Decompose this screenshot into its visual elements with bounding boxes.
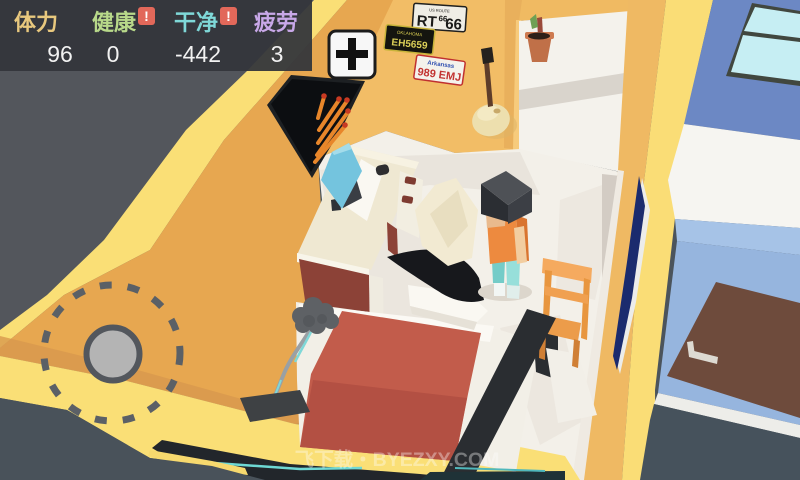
svg-text:96: 96 bbox=[47, 41, 73, 67]
svg-text:体力: 体力 bbox=[14, 10, 58, 35]
svg-text:健康: 健康 bbox=[92, 10, 137, 35]
svg-text:!: ! bbox=[144, 8, 149, 24]
svg-text:3: 3 bbox=[271, 41, 284, 67]
svg-text:干净: 干净 bbox=[174, 10, 218, 35]
svg-text:-442: -442 bbox=[175, 41, 221, 67]
svg-text:0: 0 bbox=[107, 41, 120, 67]
svg-text:66: 66 bbox=[445, 15, 463, 33]
svg-text:!: ! bbox=[226, 8, 231, 24]
svg-text:飞下载・BYEZXY.COM: 飞下载・BYEZXY.COM bbox=[295, 448, 500, 471]
svg-text:疲劳: 疲劳 bbox=[254, 10, 298, 35]
